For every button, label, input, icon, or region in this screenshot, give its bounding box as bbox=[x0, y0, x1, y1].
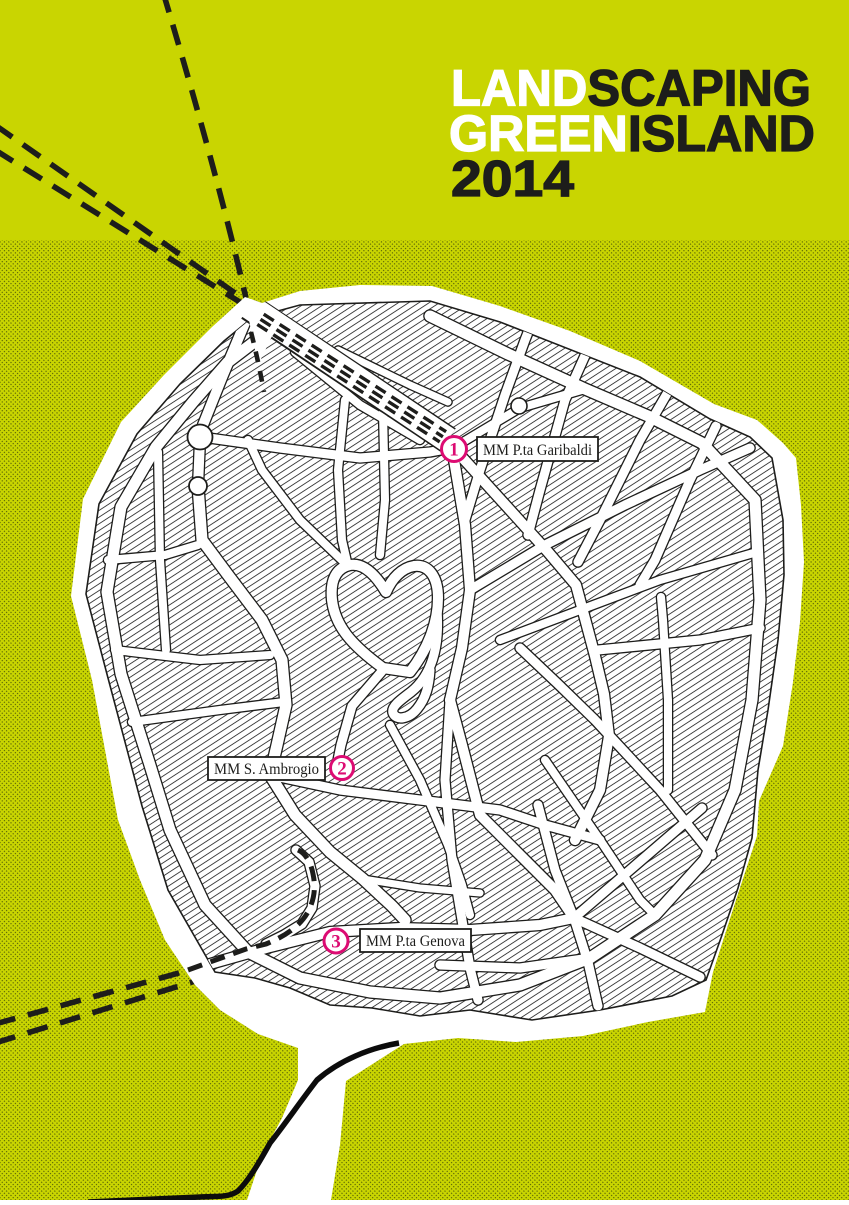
svg-text:2: 2 bbox=[337, 759, 347, 780]
svg-text:MM S. Ambrogio: MM S. Ambrogio bbox=[214, 761, 319, 778]
svg-text:MM P.ta Genova: MM P.ta Genova bbox=[366, 933, 465, 950]
svg-text:MM P.ta Garibaldi: MM P.ta Garibaldi bbox=[483, 442, 593, 459]
svg-text:3: 3 bbox=[331, 932, 341, 953]
svg-text:1: 1 bbox=[449, 440, 459, 461]
svg-text:2014: 2014 bbox=[451, 150, 575, 207]
